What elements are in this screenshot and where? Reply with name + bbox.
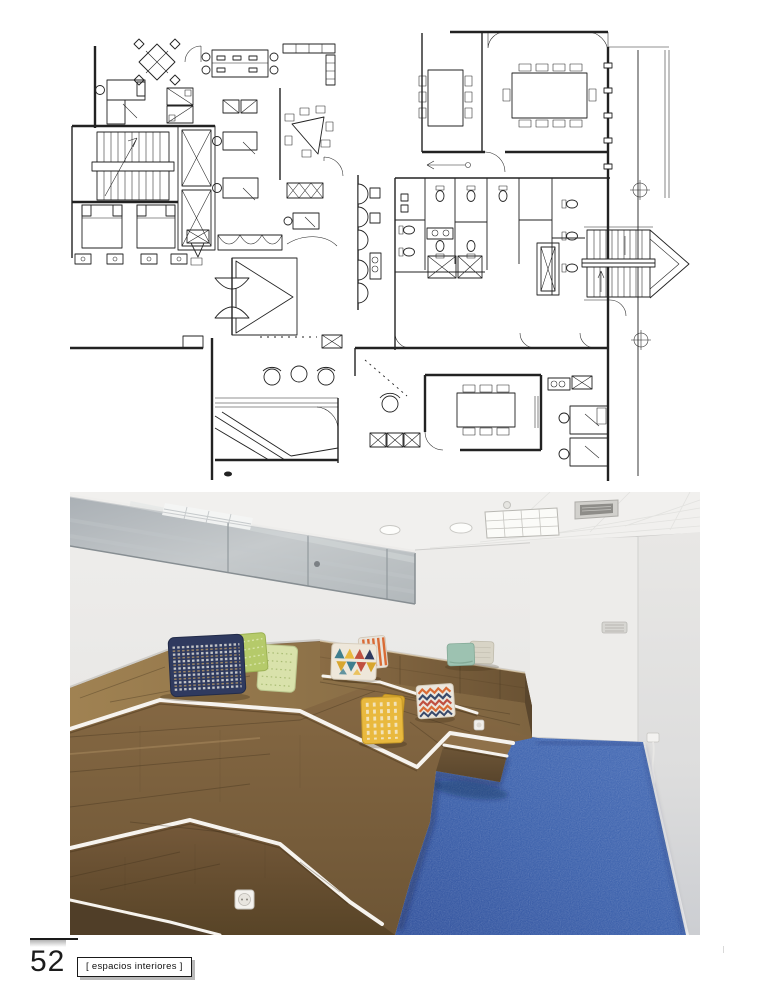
lounge-chairs-icon <box>263 366 335 385</box>
office-chair-icon <box>365 360 407 412</box>
meeting-table-6-icon <box>419 70 472 126</box>
floor-plan <box>65 8 700 486</box>
door-arc <box>317 407 338 428</box>
kitchen-nook-icon <box>358 175 381 310</box>
stairs-right-icon <box>582 227 689 316</box>
power-outlet-icon <box>235 890 254 909</box>
desk-mid-icons <box>213 132 259 200</box>
bench-crosshatch-row-icon <box>370 433 420 447</box>
wall-vent-icon <box>602 622 627 633</box>
page-number: 52 <box>30 947 78 977</box>
desk-cluster-top-icon <box>202 50 278 77</box>
x-table-icon <box>134 39 180 85</box>
stray-mark <box>723 946 724 953</box>
plan-left-wing <box>70 39 343 480</box>
magazine-page: 52 [ espacios interiores ] <box>0 0 760 983</box>
pillow-navy <box>168 634 246 697</box>
scale-arrow-icon <box>427 161 471 169</box>
shelf-unit-icon <box>283 44 335 85</box>
cabinets-icon <box>167 88 193 123</box>
stage-area-icon <box>215 258 297 335</box>
air-vent-icon <box>575 500 618 519</box>
desk-left-icon <box>96 80 146 124</box>
workstations-bottom-icon <box>548 376 608 466</box>
desk-small-icon <box>284 213 319 229</box>
pillow-triangles <box>331 643 377 681</box>
power-outlet-small-icon <box>474 720 484 730</box>
back-wall <box>530 537 638 748</box>
bench-row-icon <box>218 235 282 250</box>
interior-photo <box>70 492 700 935</box>
triangle-table-icon <box>285 106 333 157</box>
door-arc <box>324 157 343 176</box>
pillow-chevron <box>416 683 455 719</box>
curved-counter <box>287 237 337 246</box>
stairs-left-icon <box>92 132 174 200</box>
pillow-yellow <box>361 697 404 744</box>
restrooms-icon <box>355 178 610 350</box>
door-arc <box>185 46 201 62</box>
pillow-teal <box>447 643 475 666</box>
light-panel-icon <box>485 508 559 538</box>
crosshatch-cabinet-icon <box>322 335 342 348</box>
page-number-block: 52 <box>30 938 78 977</box>
section-tag-label: [ espacios interiores ] <box>86 961 183 972</box>
section-tag: [ espacios interiores ] <box>77 957 192 977</box>
sofas-icon <box>75 205 187 264</box>
side-tables-icon <box>223 100 257 113</box>
meeting-table-10-icon <box>503 64 596 127</box>
crosshatch-bench-icon <box>287 183 323 198</box>
meeting-room-small-icon <box>425 375 541 450</box>
plan-right-wing <box>355 32 689 481</box>
